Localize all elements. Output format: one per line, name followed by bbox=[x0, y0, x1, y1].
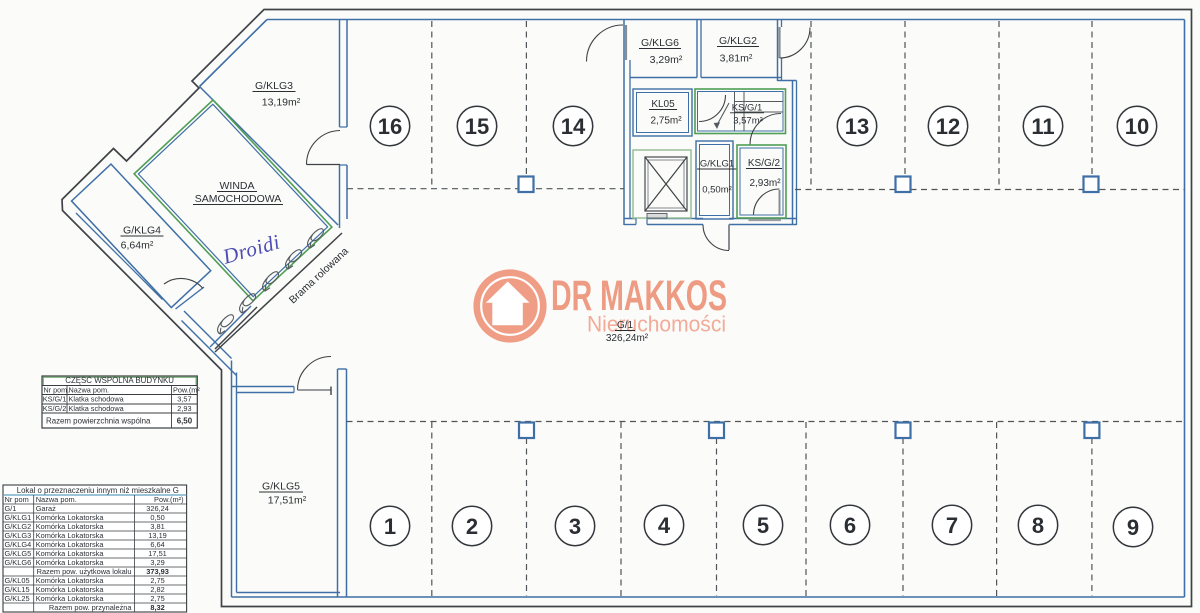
svg-text:Komórka Lokatorska: Komórka Lokatorska bbox=[36, 549, 105, 558]
svg-text:Komórka Lokatorska: Komórka Lokatorska bbox=[36, 594, 105, 603]
svg-text:Garaż: Garaż bbox=[36, 504, 56, 513]
svg-text:13,19: 13,19 bbox=[148, 531, 167, 540]
svg-text:2,93m²: 2,93m² bbox=[749, 178, 781, 189]
svg-text:G/KLG6: G/KLG6 bbox=[5, 558, 32, 567]
svg-text:Komórka Lokatorska: Komórka Lokatorska bbox=[36, 522, 105, 531]
svg-text:G/KLG4: G/KLG4 bbox=[123, 225, 161, 237]
svg-text:2: 2 bbox=[466, 514, 478, 539]
svg-text:17,51: 17,51 bbox=[148, 549, 167, 558]
svg-text:G/KLG3: G/KLG3 bbox=[255, 80, 293, 92]
svg-text:3,57m²: 3,57m² bbox=[733, 116, 763, 127]
svg-text:373,93: 373,93 bbox=[146, 567, 169, 576]
svg-text:3,81m²: 3,81m² bbox=[720, 53, 753, 65]
svg-text:2,93: 2,93 bbox=[177, 404, 191, 413]
svg-text:17,51m²: 17,51m² bbox=[268, 495, 307, 507]
svg-text:4: 4 bbox=[658, 513, 671, 538]
svg-text:7: 7 bbox=[946, 513, 958, 538]
svg-text:Komórka Lokatorska: Komórka Lokatorska bbox=[36, 540, 105, 549]
svg-text:KS/G/2: KS/G/2 bbox=[748, 158, 781, 169]
svg-text:KS/G/1: KS/G/1 bbox=[732, 103, 763, 114]
svg-text:2,75: 2,75 bbox=[150, 594, 164, 603]
svg-text:13,19m²: 13,19m² bbox=[262, 97, 301, 109]
svg-text:13: 13 bbox=[845, 114, 869, 139]
svg-text:Droidi: Droidi bbox=[219, 230, 283, 269]
svg-text:WINDA: WINDA bbox=[220, 180, 255, 192]
svg-text:Razem powierzchnia wspólna: Razem powierzchnia wspólna bbox=[46, 417, 151, 426]
svg-text:15: 15 bbox=[465, 114, 489, 139]
svg-text:326,24m²: 326,24m² bbox=[606, 333, 649, 344]
svg-text:G/KL25: G/KL25 bbox=[5, 594, 30, 603]
svg-text:KS/G/2: KS/G/2 bbox=[43, 404, 67, 413]
svg-text:G/KLG6: G/KLG6 bbox=[641, 37, 679, 49]
svg-text:Lokal o przeznaczeniu innym ni: Lokal o przeznaczeniu innym niż mieszkal… bbox=[17, 486, 179, 495]
svg-text:G/KLG3: G/KLG3 bbox=[5, 531, 32, 540]
svg-text:2,75m²: 2,75m² bbox=[650, 116, 682, 127]
svg-text:1: 1 bbox=[384, 514, 396, 539]
svg-text:KL05: KL05 bbox=[651, 99, 675, 110]
svg-text:6: 6 bbox=[844, 513, 856, 538]
svg-text:3,81: 3,81 bbox=[150, 522, 164, 531]
svg-text:6,50: 6,50 bbox=[177, 417, 193, 426]
svg-text:10: 10 bbox=[1125, 114, 1149, 139]
svg-text:14: 14 bbox=[561, 114, 586, 139]
svg-text:Pow.(m²): Pow.(m²) bbox=[154, 495, 184, 504]
svg-text:326,24: 326,24 bbox=[146, 504, 169, 513]
svg-text:Nr pom.: Nr pom. bbox=[44, 385, 70, 394]
svg-text:CZĘŚĆ WSPÓLNA BUDYNKU: CZĘŚĆ WSPÓLNA BUDYNKU bbox=[65, 376, 174, 385]
svg-text:Razem pow. przynależna: Razem pow. przynależna bbox=[49, 603, 132, 612]
svg-text:6,64m²: 6,64m² bbox=[121, 240, 154, 252]
svg-text:Komórka Lokatorska: Komórka Lokatorska bbox=[36, 585, 105, 594]
svg-text:16: 16 bbox=[378, 114, 402, 139]
svg-text:G/KLG5: G/KLG5 bbox=[262, 481, 300, 493]
svg-text:Nr pom: Nr pom bbox=[5, 495, 29, 504]
svg-text:0,50: 0,50 bbox=[150, 513, 164, 522]
svg-text:3,29m²: 3,29m² bbox=[650, 54, 683, 66]
svg-text:Klatka schodowa: Klatka schodowa bbox=[69, 404, 125, 413]
svg-text:G/KLG2: G/KLG2 bbox=[719, 35, 757, 47]
svg-text:2,82: 2,82 bbox=[150, 585, 164, 594]
svg-text:3: 3 bbox=[569, 514, 581, 539]
svg-text:Nazwa pom.: Nazwa pom. bbox=[36, 495, 77, 504]
svg-text:Klatka schodowa: Klatka schodowa bbox=[69, 395, 125, 404]
svg-text:3,29: 3,29 bbox=[150, 558, 164, 567]
svg-text:9: 9 bbox=[1127, 515, 1139, 540]
svg-text:Komórka Lokatorska: Komórka Lokatorska bbox=[36, 576, 105, 585]
svg-text:G/1: G/1 bbox=[617, 320, 634, 331]
svg-text:6,64: 6,64 bbox=[150, 540, 164, 549]
svg-text:Nazwa pom.: Nazwa pom. bbox=[69, 385, 110, 394]
svg-text:0,50m²: 0,50m² bbox=[702, 185, 732, 196]
svg-text:Razem pow. użytkowa lokalu: Razem pow. użytkowa lokalu bbox=[37, 567, 132, 576]
svg-text:SAMOCHODOWA: SAMOCHODOWA bbox=[195, 193, 282, 205]
svg-text:3,57: 3,57 bbox=[177, 395, 191, 404]
svg-text:Komórka Lokatorska: Komórka Lokatorska bbox=[36, 513, 105, 522]
svg-text:11: 11 bbox=[1031, 114, 1054, 139]
svg-text:G/KLG5: G/KLG5 bbox=[5, 549, 32, 558]
svg-text:G/1: G/1 bbox=[5, 504, 17, 513]
svg-text:Pow.(m²: Pow.(m² bbox=[173, 385, 200, 394]
svg-text:Komórka Lokatorska: Komórka Lokatorska bbox=[36, 531, 105, 540]
svg-text:G/KLG1: G/KLG1 bbox=[5, 513, 32, 522]
svg-text:5: 5 bbox=[757, 513, 769, 538]
svg-text:G/KLG1: G/KLG1 bbox=[700, 159, 734, 170]
svg-text:G/KLG4: G/KLG4 bbox=[5, 540, 32, 549]
svg-text:KS/G/1: KS/G/1 bbox=[43, 395, 67, 404]
svg-text:12: 12 bbox=[936, 114, 960, 139]
svg-text:8: 8 bbox=[1032, 513, 1044, 538]
svg-text:8,32: 8,32 bbox=[150, 603, 164, 612]
svg-text:G/KLG2: G/KLG2 bbox=[5, 522, 32, 531]
svg-text:Komórka Lokatorska: Komórka Lokatorska bbox=[36, 558, 105, 567]
svg-text:2,75: 2,75 bbox=[150, 576, 164, 585]
svg-text:G/KL15: G/KL15 bbox=[5, 585, 30, 594]
svg-text:G/KL05: G/KL05 bbox=[5, 576, 30, 585]
